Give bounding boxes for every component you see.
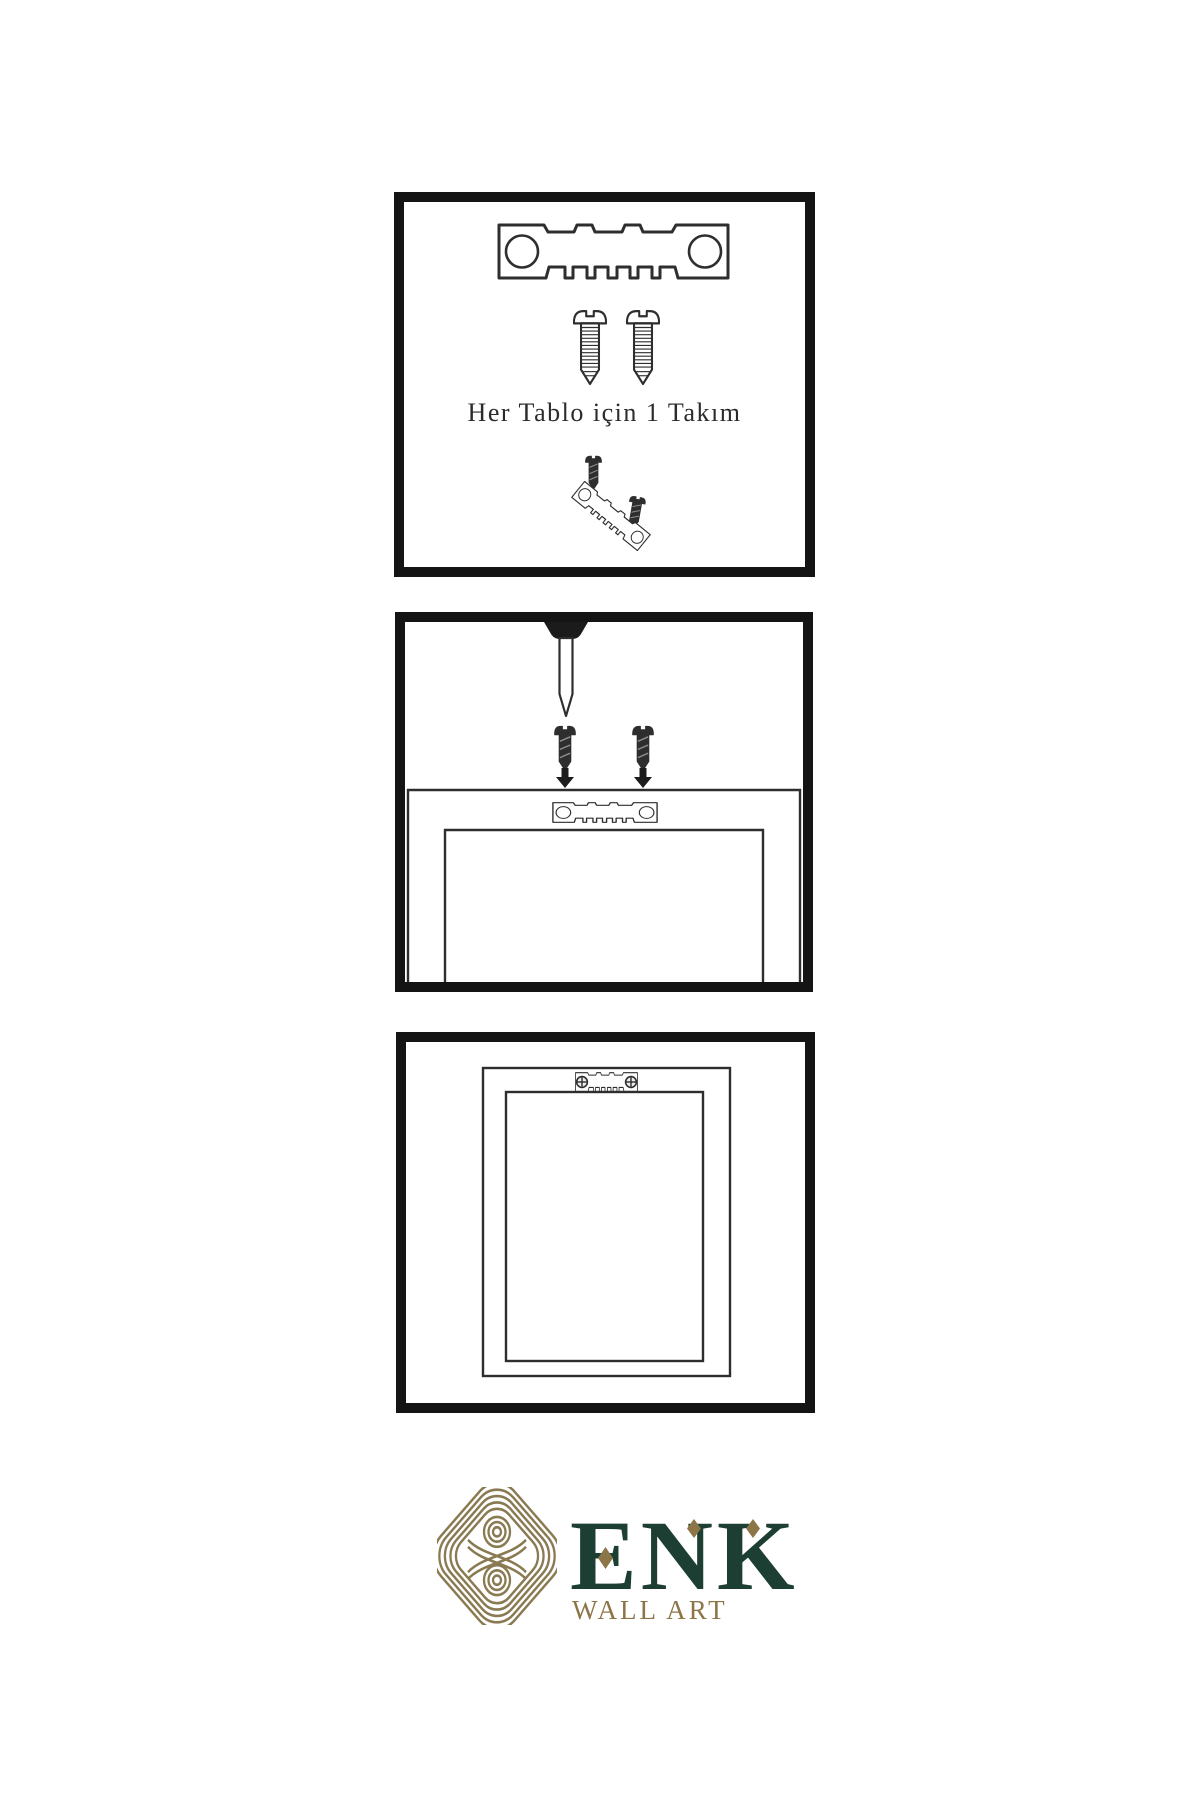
phillips-screw-icon	[577, 1077, 588, 1088]
brand-tagline: WALL ART	[572, 1597, 728, 1624]
screw-icon	[627, 311, 659, 384]
arrow-down-icon	[634, 768, 652, 788]
hardware-kit-illustration	[404, 202, 805, 567]
dark-screw-icon	[555, 726, 576, 770]
arrow-down-icon	[556, 768, 574, 788]
kit-caption: Her Tablo için 1 Takım	[404, 398, 805, 428]
panel-hardware-kit	[394, 192, 815, 577]
dark-screw-icon	[633, 726, 654, 770]
sawtooth-hanger-plate-icon	[499, 225, 728, 278]
panel-install-hanger	[395, 612, 813, 992]
hang-frame-illustration	[406, 1042, 805, 1403]
frame-back-icon	[483, 1068, 730, 1376]
nail-icon	[544, 622, 588, 716]
sawtooth-hanger-plate-icon	[553, 803, 657, 823]
panel-hang-frame	[396, 1032, 815, 1413]
phillips-screw-icon	[626, 1077, 637, 1088]
knot-logo-icon	[437, 1487, 557, 1625]
install-hanger-illustration	[405, 622, 803, 982]
hanger-assembly-icon	[572, 456, 651, 550]
mounted-hanger-icon	[576, 1073, 638, 1092]
screw-icon	[574, 311, 606, 384]
